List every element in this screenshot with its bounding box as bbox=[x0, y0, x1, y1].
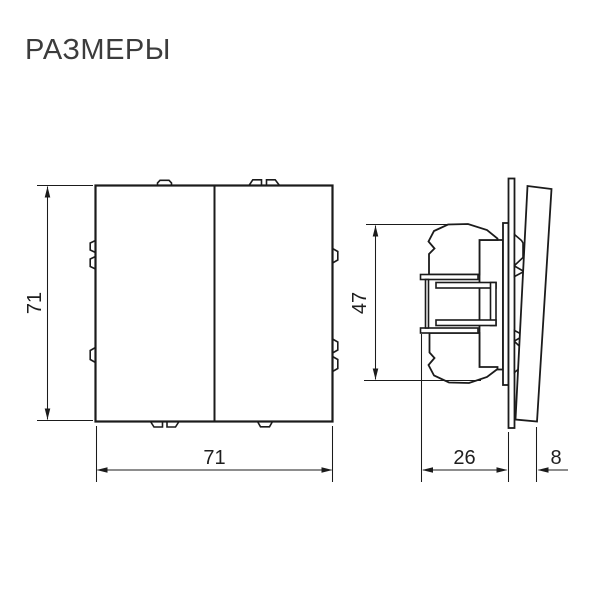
dimensions-page: РАЗМЕРЫ bbox=[0, 0, 600, 600]
front-view bbox=[90, 180, 338, 427]
dimension-label: 8 bbox=[550, 447, 561, 469]
arrowhead-right bbox=[497, 467, 508, 473]
arrowhead-up bbox=[373, 226, 379, 237]
arrowhead-left bbox=[97, 467, 108, 473]
arrowhead-left bbox=[422, 467, 433, 473]
dimension-rocker-depth: 8 bbox=[537, 427, 569, 482]
dimensions-diagram: 71 71 47 26 bbox=[0, 0, 600, 600]
dimension-label: 71 bbox=[24, 292, 46, 314]
arrowhead-up bbox=[45, 187, 51, 198]
dimension-label: 71 bbox=[203, 447, 225, 469]
arrowhead-right bbox=[322, 467, 333, 473]
terminal-box-bottom-bar bbox=[436, 320, 496, 326]
dimension-front-height: 71 bbox=[24, 186, 93, 421]
terminal-box-left-wall bbox=[426, 280, 429, 329]
arrowhead-down bbox=[373, 369, 379, 380]
terminal-box-right-bar bbox=[491, 283, 497, 326]
side-view bbox=[421, 179, 552, 429]
dimension-label: 47 bbox=[349, 292, 371, 314]
arrowhead-left bbox=[538, 467, 549, 473]
dimension-label: 26 bbox=[453, 447, 475, 469]
dimension-front-width: 71 bbox=[97, 426, 333, 482]
mounting-plate bbox=[509, 179, 515, 429]
rocker-key-side bbox=[516, 186, 552, 422]
arrowhead-down bbox=[45, 409, 51, 420]
rocker-pivot-upper bbox=[515, 235, 524, 266]
terminal-box-top-bar bbox=[436, 283, 496, 289]
